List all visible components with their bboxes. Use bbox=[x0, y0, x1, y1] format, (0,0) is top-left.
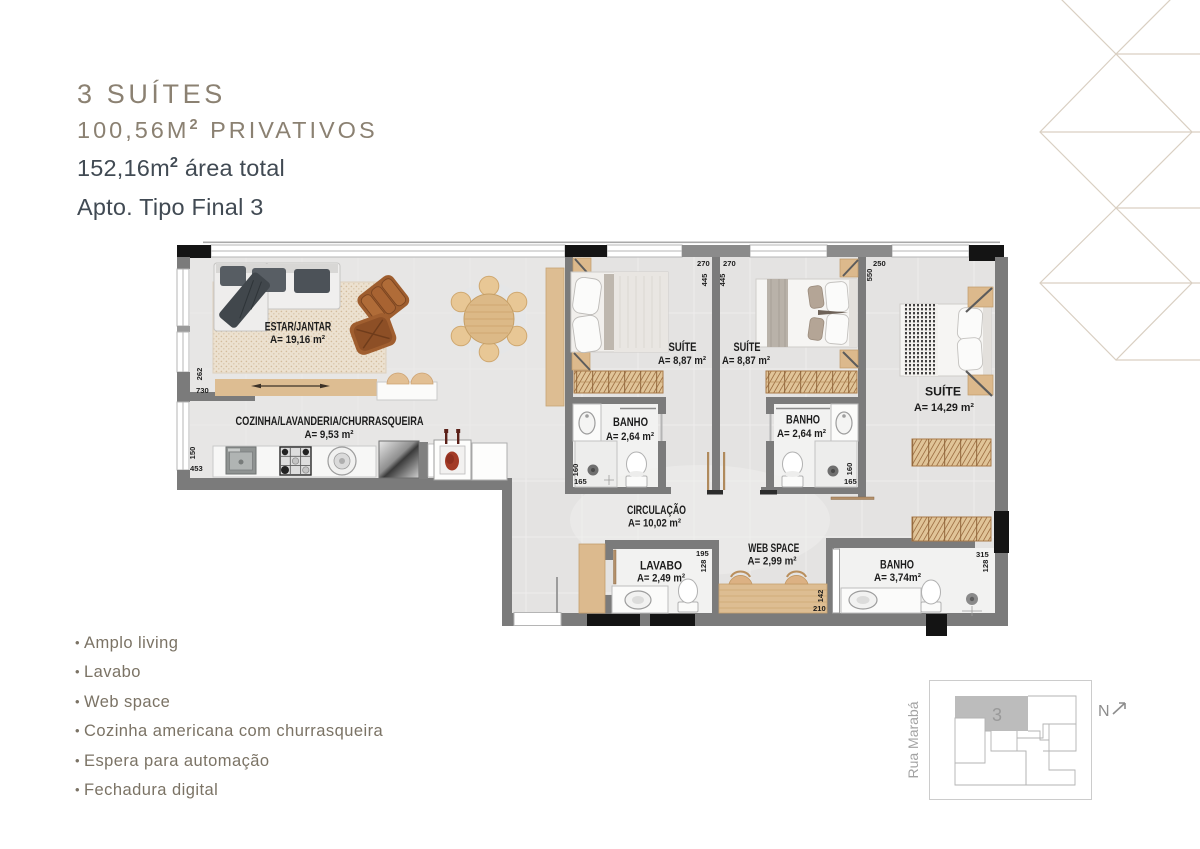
svg-text:A= 8,87 m²: A= 8,87 m² bbox=[722, 355, 770, 367]
svg-text:A= 2,64 m²: A= 2,64 m² bbox=[777, 428, 826, 440]
svg-text:315: 315 bbox=[976, 550, 989, 559]
svg-text:COZINHA/LAVANDERIA/CHURRASQUEI: COZINHA/LAVANDERIA/CHURRASQUEIRA bbox=[236, 416, 424, 428]
svg-text:N: N bbox=[1098, 703, 1110, 720]
svg-text:A= 2,64 m²: A= 2,64 m² bbox=[606, 431, 654, 443]
svg-text:165: 165 bbox=[844, 477, 857, 486]
svg-text:160: 160 bbox=[845, 463, 854, 476]
svg-text:550: 550 bbox=[865, 269, 874, 282]
svg-text:SUÍTE: SUÍTE bbox=[734, 341, 761, 354]
svg-text:262: 262 bbox=[195, 368, 204, 381]
svg-text:BANHO: BANHO bbox=[613, 417, 648, 429]
svg-text:128: 128 bbox=[981, 560, 990, 573]
svg-text:453: 453 bbox=[190, 464, 203, 473]
svg-text:BANHO: BANHO bbox=[880, 560, 914, 572]
svg-text:A= 3,74m²: A= 3,74m² bbox=[874, 572, 921, 584]
svg-text:195: 195 bbox=[696, 549, 709, 558]
svg-text:A= 10,02 m²: A= 10,02 m² bbox=[628, 518, 681, 530]
svg-text:A= 14,29 m²: A= 14,29 m² bbox=[914, 402, 974, 414]
svg-text:SUÍTE: SUÍTE bbox=[669, 341, 697, 354]
svg-text:A= 19,16 m²: A= 19,16 m² bbox=[270, 334, 325, 346]
svg-text:A= 2,99 m²: A= 2,99 m² bbox=[748, 556, 797, 568]
svg-text:210: 210 bbox=[813, 604, 826, 613]
svg-text:CIRCULAÇÃO: CIRCULAÇÃO bbox=[627, 504, 686, 517]
svg-text:128: 128 bbox=[699, 560, 708, 573]
svg-text:250: 250 bbox=[873, 259, 886, 268]
svg-text:SUÍTE: SUÍTE bbox=[925, 386, 961, 399]
svg-text:ESTAR/JANTAR: ESTAR/JANTAR bbox=[265, 322, 332, 334]
svg-text:A= 2,49 m²: A= 2,49 m² bbox=[637, 573, 685, 585]
svg-text:445: 445 bbox=[718, 273, 727, 286]
svg-text:270: 270 bbox=[697, 259, 710, 268]
svg-text:160: 160 bbox=[571, 464, 580, 477]
svg-text:150: 150 bbox=[188, 447, 197, 460]
svg-text:445: 445 bbox=[700, 273, 709, 286]
svg-text:WEB SPACE: WEB SPACE bbox=[748, 543, 799, 555]
svg-text:Rua Marabá: Rua Marabá bbox=[905, 701, 921, 778]
svg-text:730: 730 bbox=[196, 386, 209, 395]
svg-text:A= 8,87 m²: A= 8,87 m² bbox=[658, 355, 706, 367]
svg-text:3: 3 bbox=[992, 705, 1002, 725]
svg-text:165: 165 bbox=[574, 477, 587, 486]
svg-text:142: 142 bbox=[816, 590, 825, 603]
svg-text:270: 270 bbox=[723, 259, 736, 268]
svg-text:BANHO: BANHO bbox=[786, 415, 820, 427]
svg-text:LAVABO: LAVABO bbox=[640, 561, 682, 573]
svg-text:A= 9,53 m²: A= 9,53 m² bbox=[305, 429, 354, 441]
